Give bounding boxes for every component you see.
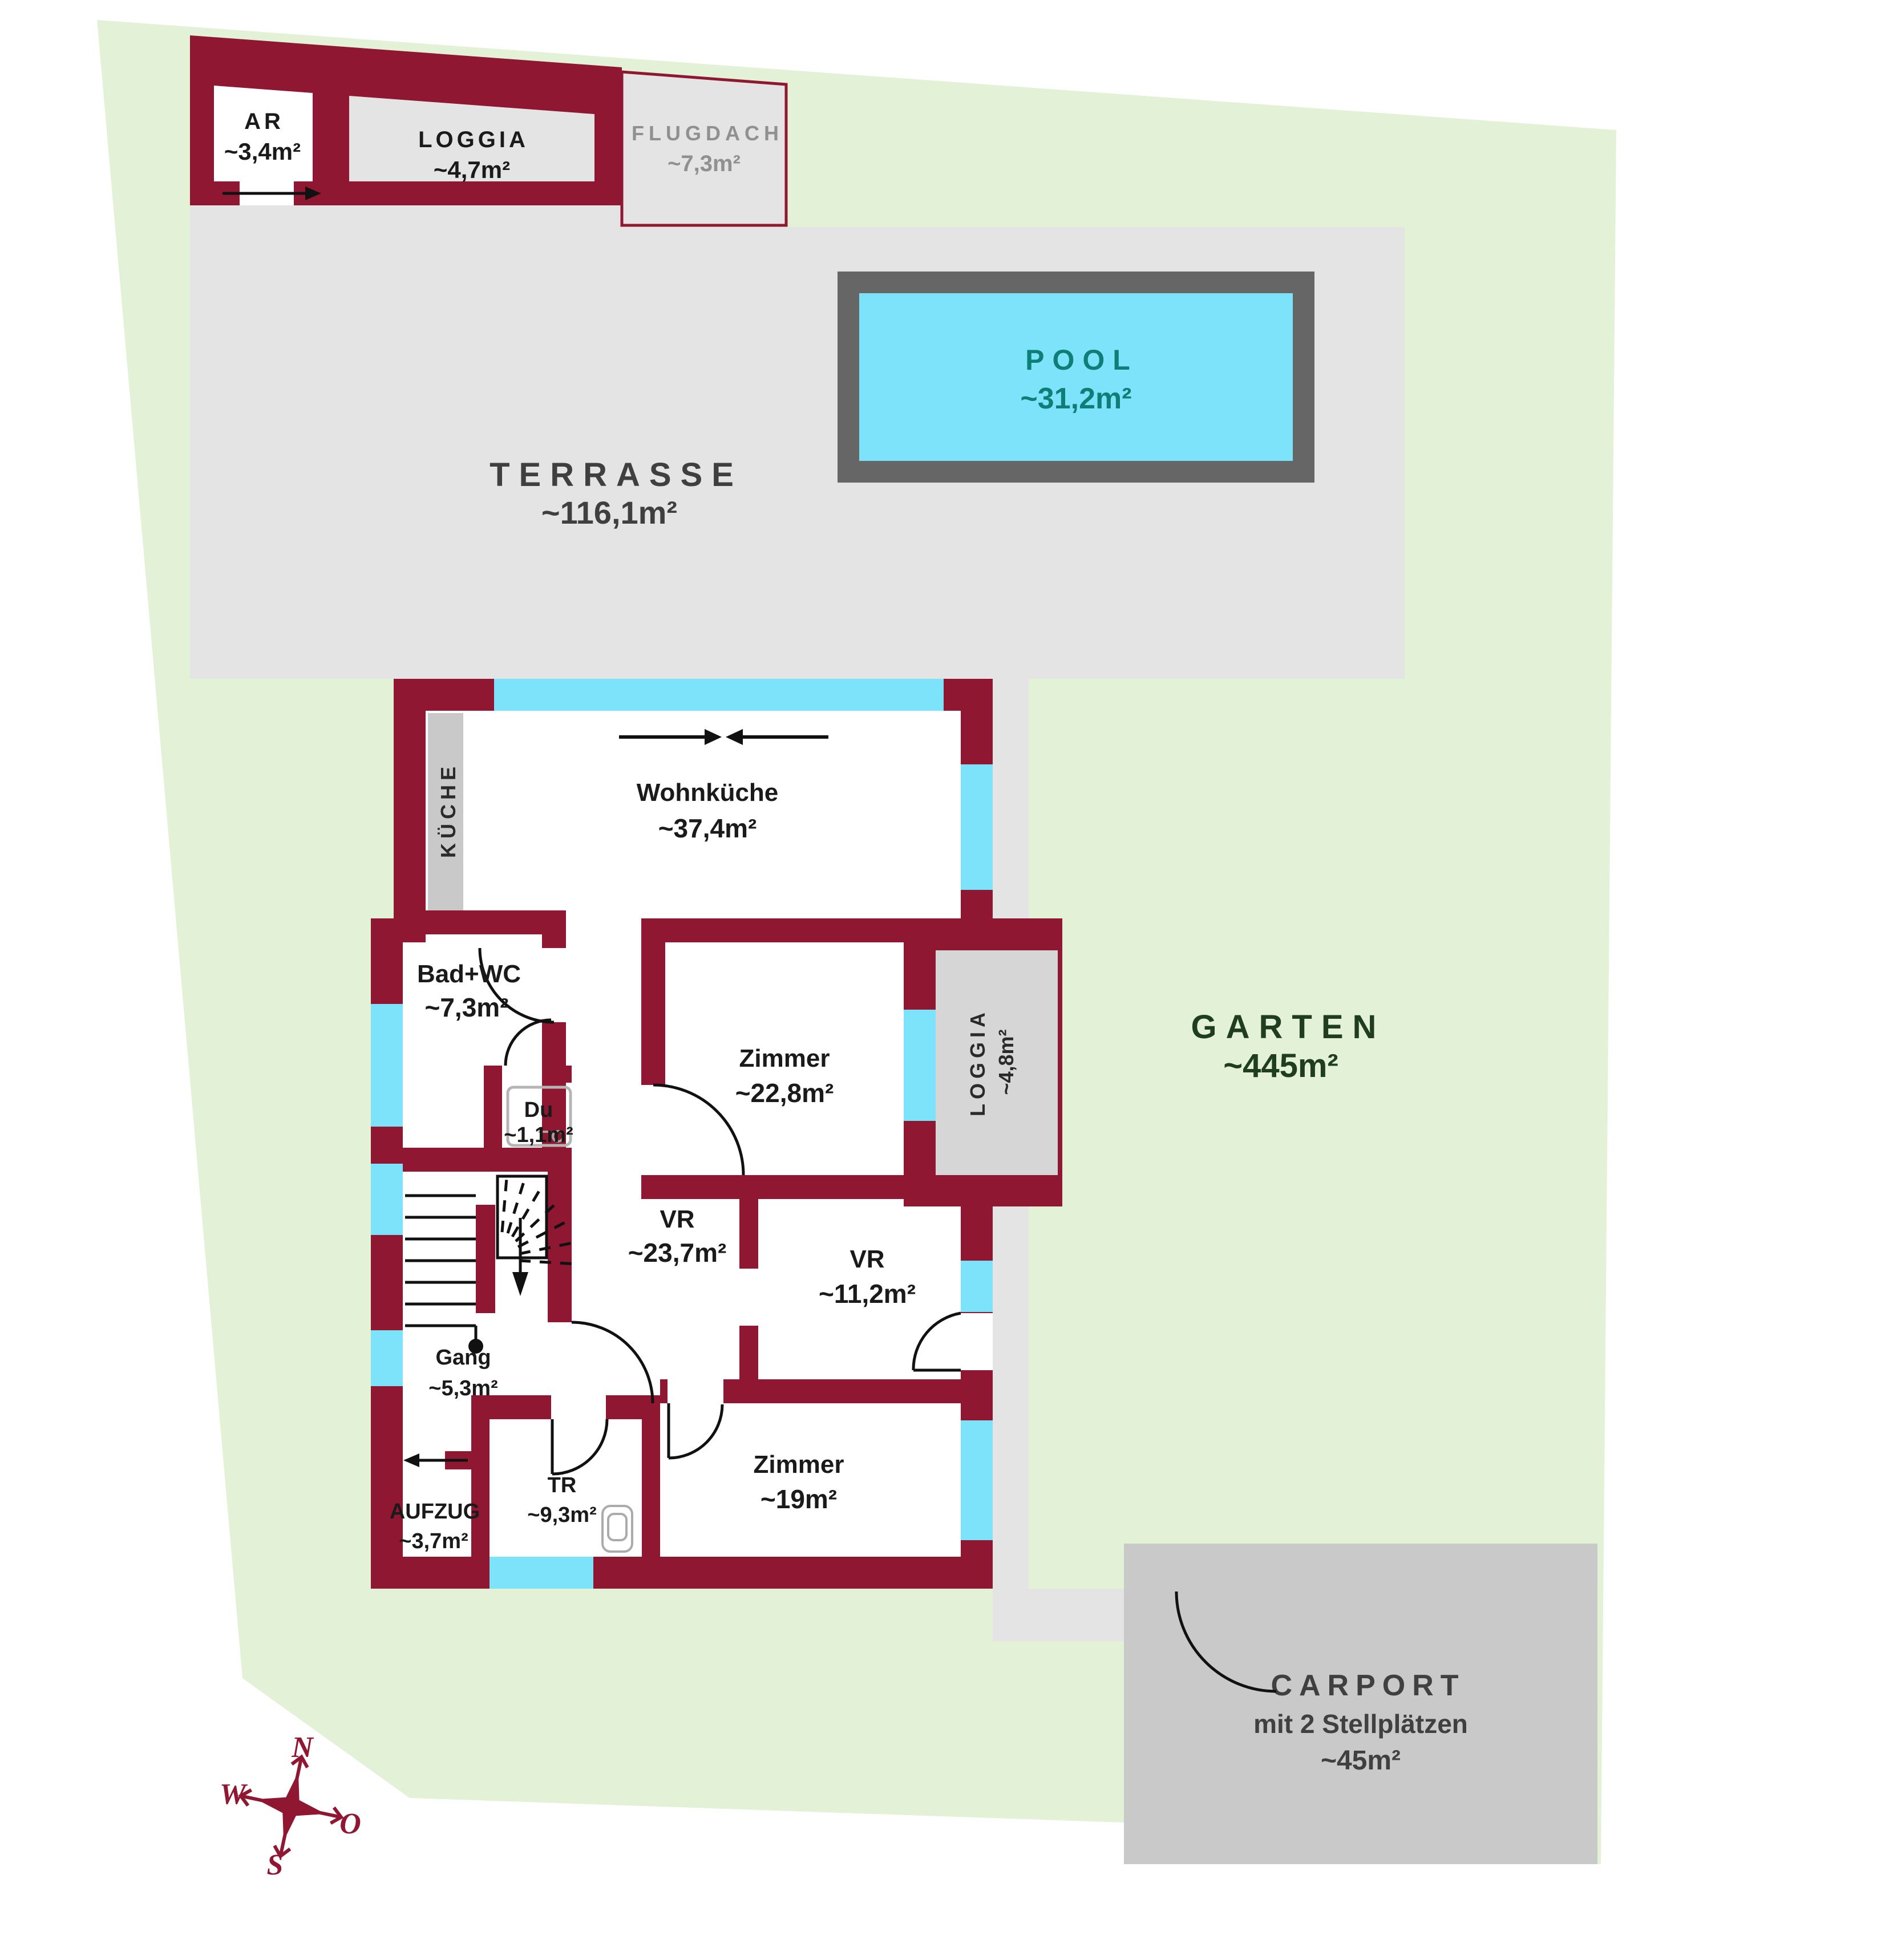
wall-tr-east: [642, 1395, 660, 1557]
wall-zimmer-west-top: [641, 918, 665, 1085]
terrasse-value: ~116,1m²: [541, 495, 677, 531]
du-value: ~1,1m²: [504, 1123, 573, 1147]
vr-klein-value: ~11,2m²: [819, 1279, 916, 1309]
loggia-ost-wall-bottom: [936, 1175, 1062, 1206]
wall-stair-north: [403, 1148, 572, 1172]
loggia-ost-wall-top: [936, 918, 1062, 950]
garten-label: GARTEN: [1191, 1009, 1386, 1046]
loggia-ost-label: LOGGIA: [966, 1008, 989, 1116]
floorplan-stage: CARPORT mit 2 Stellplätzen ~45m² POOL ~3…: [0, 0, 1881, 1960]
window-west-stair: [371, 1164, 403, 1235]
door-gap-east-vr: [961, 1313, 993, 1370]
carport-subtitle: mit 2 Stellplätzen: [1253, 1709, 1468, 1739]
wall-stair-east: [548, 1172, 572, 1322]
window-loggia-ost: [904, 1010, 936, 1121]
window-north: [494, 679, 944, 711]
loggia-ost-wall-outer: [1058, 918, 1062, 1206]
window-west-gang: [371, 1330, 403, 1386]
carport-label: CARPORT: [1271, 1669, 1465, 1702]
wall-bad-east-top: [542, 910, 566, 948]
bad-wc-value: ~7,3m²: [424, 993, 508, 1022]
wall-bad-north: [403, 910, 566, 934]
pool-label: POOL: [1025, 344, 1138, 376]
bad-wc-label: Bad+WC: [417, 960, 521, 988]
pool-water: [859, 293, 1293, 461]
compass-s: S: [267, 1849, 284, 1881]
tr-value: ~9,3m²: [527, 1503, 596, 1527]
loggia-ost-value: ~4,8m²: [994, 1029, 1018, 1095]
wall-du-west: [484, 1066, 502, 1148]
compass-rose: N W O S: [220, 1731, 361, 1881]
kueche-label: KÜCHE: [436, 762, 460, 858]
flugdach-canopy: FLUGDACH ~7,3m²: [622, 72, 786, 225]
wall-du-north: [551, 1066, 572, 1083]
wall-tr-north-left: [490, 1395, 551, 1419]
wall-aufzug-east: [471, 1395, 490, 1557]
du-label: Du: [524, 1098, 553, 1122]
compass-w: W: [220, 1778, 248, 1811]
terrasse-label: TERRASSE: [490, 456, 743, 493]
wall-vr-divider-bottom: [739, 1326, 758, 1379]
zimmer-gross-value: ~22,8m²: [735, 1078, 834, 1108]
ar-value: ~3,4m²: [224, 138, 301, 165]
window-east-wohnkueche: [961, 764, 993, 890]
garten-value: ~445m²: [1223, 1047, 1338, 1084]
loggia-ost: LOGGIA ~4,8m²: [936, 918, 1062, 1206]
wohnkueche-label: Wohnküche: [637, 779, 779, 807]
window-south-tr: [490, 1557, 593, 1589]
window-west-bad: [371, 1004, 403, 1127]
annex-loggia-value: ~4,7m²: [434, 156, 510, 183]
gang-label: Gang: [435, 1346, 491, 1370]
wall-zimmer-north: [641, 918, 936, 942]
aufzug-value: ~3,7m²: [399, 1529, 468, 1553]
wall-vr-south-sliver: [660, 1379, 668, 1403]
zimmer-gross-label: Zimmer: [739, 1044, 830, 1072]
wall-stair-stub: [476, 1205, 495, 1313]
vr-klein-label: VR: [850, 1245, 884, 1273]
pool: POOL ~31,2m²: [838, 272, 1314, 483]
ar-label: AR: [244, 109, 284, 134]
tr-label: TR: [548, 1473, 577, 1497]
window-east-zimmer: [961, 1420, 993, 1540]
window-east-vr: [961, 1261, 993, 1312]
carport-value: ~45m²: [1321, 1746, 1401, 1776]
zimmer-klein-label: Zimmer: [754, 1451, 844, 1479]
flugdach-value: ~7,3m²: [668, 151, 741, 176]
zimmer-klein-value: ~19m²: [761, 1484, 837, 1514]
gang-value: ~5,3m²: [428, 1376, 497, 1400]
wall-vr-divider-top: [739, 1199, 758, 1269]
compass-o: O: [339, 1808, 361, 1840]
carport-area: [1124, 1544, 1597, 1864]
wall-vr-south: [723, 1379, 961, 1403]
pool-value: ~31,2m²: [1020, 382, 1131, 415]
vr-gross-value: ~23,7m²: [628, 1238, 727, 1267]
annex-loggia-label: LOGGIA: [418, 127, 529, 152]
vr-gross-label: VR: [660, 1205, 694, 1233]
aufzug-label: AUFZUG: [390, 1500, 480, 1524]
wohnkueche-value: ~37,4m²: [658, 813, 757, 843]
compass-n: N: [291, 1731, 314, 1764]
flugdach-label: FLUGDACH: [632, 122, 783, 145]
wall-tr-north-right: [606, 1395, 642, 1419]
wall-zimmer-south: [641, 1175, 904, 1199]
floorplan-svg: CARPORT mit 2 Stellplätzen ~45m² POOL ~3…: [0, 0, 1881, 1960]
